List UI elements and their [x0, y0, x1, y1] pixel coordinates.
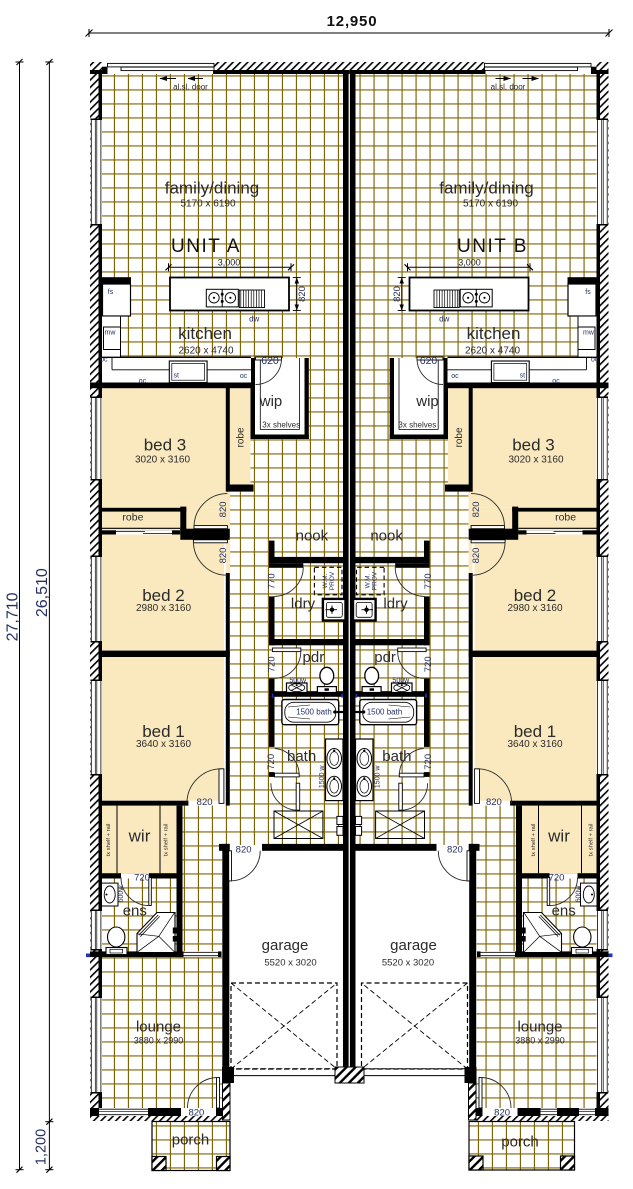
svg-text:W.M.PROV: W.M.PROV: [322, 571, 336, 590]
svg-text:kitchen: kitchen: [178, 324, 232, 343]
svg-text:UNIT A: UNIT A: [171, 236, 241, 257]
svg-text:500w: 500w: [392, 678, 410, 685]
svg-text:ldry: ldry: [291, 596, 316, 613]
svg-text:720: 720: [423, 656, 434, 672]
svg-text:tx shelf + rail: tx shelf + rail: [106, 824, 112, 857]
svg-text:dw: dw: [439, 315, 449, 324]
svg-text:720: 720: [423, 754, 434, 770]
svg-text:3,000: 3,000: [458, 257, 481, 267]
svg-text:720: 720: [549, 873, 565, 884]
svg-text:820: 820: [188, 1108, 204, 1119]
svg-text:pdr: pdr: [374, 649, 396, 666]
svg-text:porch: porch: [501, 1134, 539, 1151]
svg-text:820: 820: [197, 797, 213, 808]
svg-text:3020 x 3160: 3020 x 3160: [508, 455, 563, 466]
svg-text:mw: mw: [583, 330, 595, 337]
svg-text:5520 x 3020: 5520 x 3020: [264, 958, 316, 969]
svg-text:1500 w: 1500 w: [375, 765, 382, 789]
svg-text:lounge: lounge: [517, 1019, 562, 1036]
svg-text:tx shelf + rail: tx shelf + rail: [531, 824, 537, 857]
svg-text:oc: oc: [552, 378, 560, 385]
svg-text:robe: robe: [555, 512, 576, 524]
svg-text:2620 x 4740: 2620 x 4740: [465, 346, 520, 357]
svg-text:820: 820: [486, 797, 502, 808]
svg-text:nook: nook: [370, 528, 403, 545]
svg-text:2980 x 3160: 2980 x 3160: [507, 603, 562, 614]
svg-text:st: st: [520, 373, 526, 380]
svg-text:600w: 600w: [575, 885, 582, 903]
svg-text:garage: garage: [390, 937, 437, 954]
svg-text:al.sl. door: al.sl. door: [173, 83, 208, 92]
svg-text:620: 620: [420, 355, 438, 367]
svg-text:3020 x 3160: 3020 x 3160: [135, 455, 190, 466]
svg-text:770: 770: [423, 573, 434, 589]
svg-text:1,200: 1,200: [33, 1129, 49, 1165]
svg-text:26,510: 26,510: [34, 568, 51, 617]
svg-text:oc: oc: [139, 378, 147, 385]
svg-text:bed 3: bed 3: [144, 436, 187, 455]
svg-text:3640 x 3160: 3640 x 3160: [136, 739, 191, 750]
svg-text:fs: fs: [108, 289, 114, 296]
svg-text:820: 820: [494, 1108, 510, 1119]
svg-text:wip: wip: [415, 393, 439, 410]
svg-text:820: 820: [297, 286, 308, 302]
svg-text:wir: wir: [547, 827, 570, 846]
svg-text:720: 720: [134, 873, 150, 884]
svg-text:3x shelves: 3x shelves: [262, 420, 300, 429]
svg-text:1500 bath: 1500 bath: [367, 708, 403, 717]
svg-text:600w: 600w: [118, 885, 125, 903]
svg-text:bed 3: bed 3: [512, 436, 555, 455]
svg-text:al.sl. door: al.sl. door: [491, 83, 526, 92]
svg-text:bath: bath: [287, 748, 316, 765]
svg-text:oc: oc: [100, 357, 108, 364]
svg-text:pdr: pdr: [303, 649, 325, 666]
svg-text:family/dining: family/dining: [165, 179, 260, 198]
svg-text:oc: oc: [451, 373, 459, 380]
svg-text:ens: ens: [123, 903, 147, 920]
svg-text:robe: robe: [122, 512, 143, 524]
svg-text:820: 820: [447, 845, 463, 856]
svg-text:820: 820: [392, 286, 403, 302]
svg-text:wip: wip: [259, 393, 283, 410]
svg-text:robe: robe: [236, 427, 247, 447]
svg-text:fs: fs: [585, 289, 591, 296]
svg-text:3,000: 3,000: [218, 257, 241, 267]
svg-text:ens: ens: [552, 903, 576, 920]
svg-text:620: 620: [261, 355, 279, 367]
svg-text:820: 820: [236, 845, 252, 856]
svg-text:1500 bath: 1500 bath: [296, 708, 332, 717]
svg-text:kitchen: kitchen: [467, 324, 521, 343]
svg-text:oc: oc: [240, 373, 248, 380]
svg-text:2620 x 4740: 2620 x 4740: [178, 346, 233, 357]
svg-text:720: 720: [266, 656, 277, 672]
svg-text:1500 w: 1500 w: [319, 765, 326, 789]
svg-text:500w: 500w: [289, 678, 307, 685]
svg-text:5520 x 3020: 5520 x 3020: [382, 958, 434, 969]
svg-text:27,710: 27,710: [4, 592, 21, 641]
svg-text:bath: bath: [382, 748, 411, 765]
svg-text:st: st: [173, 373, 179, 380]
svg-text:ldry: ldry: [383, 596, 408, 613]
svg-text:3x shelves: 3x shelves: [398, 420, 436, 429]
svg-text:tx shelf + rail: tx shelf + rail: [589, 824, 595, 857]
svg-text:oc: oc: [591, 357, 599, 364]
svg-text:family/dining: family/dining: [439, 179, 534, 198]
svg-text:porch: porch: [172, 1132, 210, 1149]
svg-text:nook: nook: [296, 528, 329, 545]
svg-text:770: 770: [266, 573, 277, 589]
svg-text:12,950: 12,950: [327, 13, 378, 30]
svg-text:W.M.PROV: W.M.PROV: [364, 571, 378, 590]
svg-text:820: 820: [218, 501, 229, 517]
svg-text:wir: wir: [128, 827, 151, 846]
svg-text:robe: robe: [454, 427, 465, 447]
svg-text:UNIT B: UNIT B: [457, 236, 528, 257]
svg-text:720: 720: [266, 754, 277, 770]
svg-text:820: 820: [471, 501, 482, 517]
svg-text:3880 x 2990: 3880 x 2990: [515, 1036, 565, 1046]
svg-text:mw: mw: [105, 330, 117, 337]
svg-text:5170 x 6190: 5170 x 6190: [463, 199, 518, 210]
svg-text:820: 820: [471, 548, 482, 564]
svg-text:tx shelf + rail: tx shelf + rail: [164, 824, 170, 857]
svg-text:820: 820: [218, 548, 229, 564]
svg-text:3880 x 2990: 3880 x 2990: [134, 1036, 184, 1046]
svg-text:lounge: lounge: [136, 1019, 181, 1036]
svg-text:dw: dw: [249, 315, 259, 324]
svg-text:3640 x 3160: 3640 x 3160: [507, 739, 562, 750]
svg-text:2980 x 3160: 2980 x 3160: [136, 603, 191, 614]
svg-text:garage: garage: [262, 937, 309, 954]
svg-text:5170 x 6190: 5170 x 6190: [180, 199, 235, 210]
